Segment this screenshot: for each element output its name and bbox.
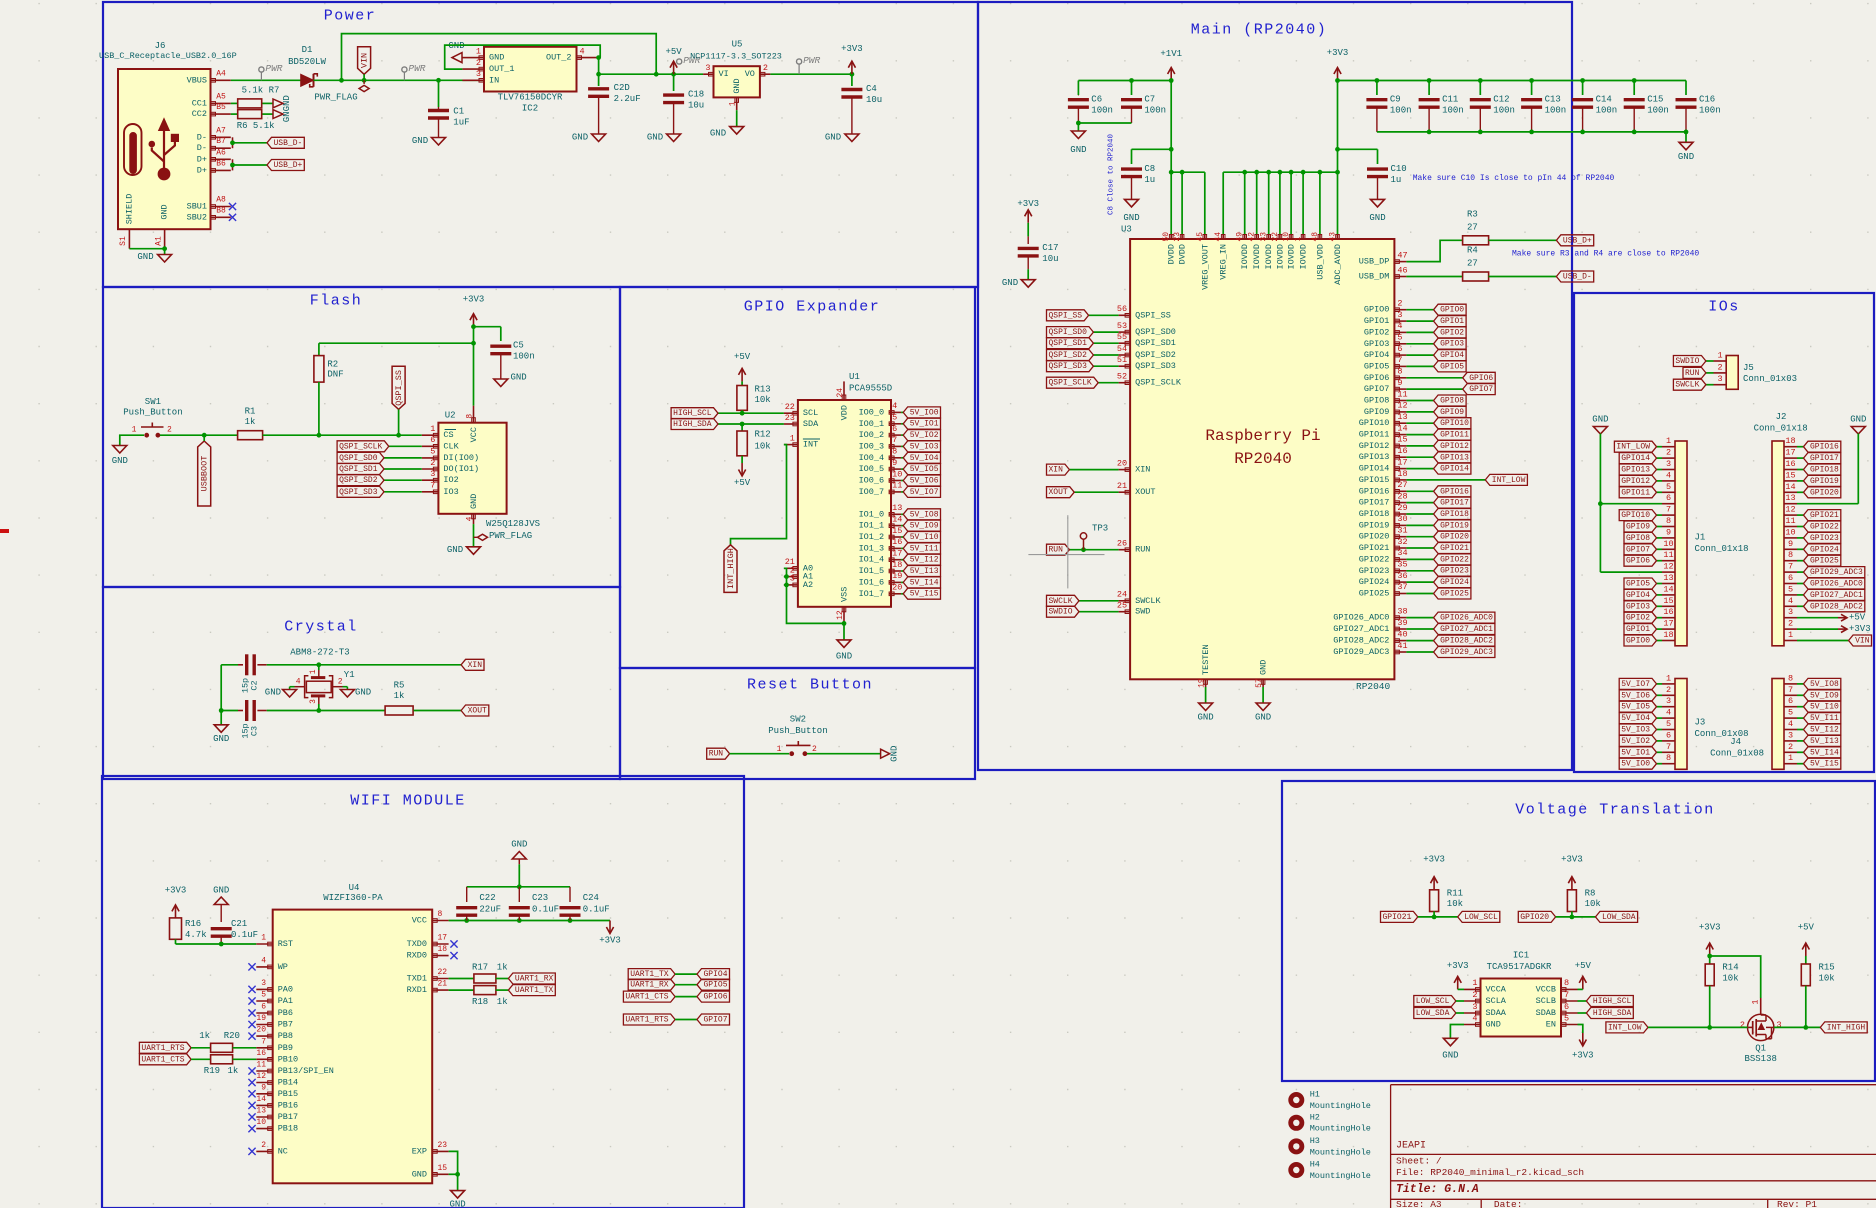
svg-text:S1: S1 <box>119 236 128 246</box>
svg-text:5V_IO0: 5V_IO0 <box>910 408 939 417</box>
svg-text:+3V3: +3V3 <box>1327 48 1349 58</box>
svg-text:2: 2 <box>1666 448 1671 458</box>
svg-text:5V_IO4: 5V_IO4 <box>1621 714 1650 723</box>
svg-text:5V_I14: 5V_I14 <box>910 578 939 587</box>
svg-text:44: 44 <box>1214 232 1223 242</box>
svg-text:R4: R4 <box>1467 246 1478 256</box>
svg-text:GND: GND <box>1850 414 1866 424</box>
svg-text:3: 3 <box>790 574 795 584</box>
svg-text:+5V: +5V <box>734 352 751 362</box>
svg-text:19: 19 <box>256 1014 266 1023</box>
svg-text:UART1_RX: UART1_RX <box>630 981 669 990</box>
svg-text:13: 13 <box>1785 493 1795 503</box>
svg-text:Power: Power <box>324 8 377 25</box>
svg-text:15: 15 <box>1397 435 1407 445</box>
svg-text:GND: GND <box>265 688 281 698</box>
svg-text:C7: C7 <box>1144 95 1155 105</box>
svg-text:SW1: SW1 <box>145 397 161 407</box>
svg-text:5V_I10: 5V_I10 <box>1810 703 1839 712</box>
svg-text:GPIO26_ADC0: GPIO26_ADC0 <box>1333 613 1389 623</box>
svg-text:7: 7 <box>1397 355 1402 365</box>
svg-text:5V_I14: 5V_I14 <box>1810 748 1839 757</box>
svg-text:GPIO10: GPIO10 <box>1440 419 1469 428</box>
svg-text:RUN: RUN <box>1135 545 1150 555</box>
svg-text:3: 3 <box>1777 1020 1782 1030</box>
svg-text:14: 14 <box>1785 482 1795 492</box>
svg-text:UART1_TX: UART1_TX <box>630 970 669 979</box>
svg-text:GND: GND <box>1197 713 1213 723</box>
svg-text:D+: D+ <box>197 165 207 175</box>
svg-text:SDAA: SDAA <box>1486 1008 1507 1018</box>
svg-text:VREG_VOUT: VREG_VOUT <box>1200 244 1210 290</box>
svg-text:GPIO9: GPIO9 <box>1440 408 1464 417</box>
svg-text:Main (RP2040): Main (RP2040) <box>1191 22 1328 39</box>
svg-text:PB14: PB14 <box>278 1078 298 1088</box>
svg-text:Sheet: /: Sheet: / <box>1396 1155 1442 1166</box>
svg-text:2: 2 <box>812 745 817 754</box>
svg-text:1k: 1k <box>497 963 508 973</box>
svg-text:4: 4 <box>1788 719 1793 729</box>
svg-text:17: 17 <box>438 934 448 943</box>
svg-text:1: 1 <box>132 425 137 434</box>
svg-text:GPIO27_ADC1: GPIO27_ADC1 <box>1810 591 1863 600</box>
svg-text:C2D: C2D <box>614 83 630 93</box>
svg-text:12: 12 <box>1663 562 1673 572</box>
svg-text:GPIO4: GPIO4 <box>1364 350 1390 360</box>
svg-text:GPIO20: GPIO20 <box>1810 488 1839 497</box>
svg-text:5: 5 <box>1788 584 1793 594</box>
svg-text:IO1_3: IO1_3 <box>859 543 885 553</box>
svg-text:22uF: 22uF <box>479 905 501 915</box>
svg-text:36: 36 <box>1397 571 1407 581</box>
svg-text:4: 4 <box>466 516 475 521</box>
svg-text:XIN: XIN <box>1135 465 1150 475</box>
svg-text:Conn_01x18: Conn_01x18 <box>1695 544 1749 554</box>
svg-text:GPIO7: GPIO7 <box>1626 545 1650 554</box>
svg-text:GPIO26_ADC0: GPIO26_ADC0 <box>1810 580 1863 589</box>
svg-text:GPIO27_ADC1: GPIO27_ADC1 <box>1333 624 1389 634</box>
svg-text:GND: GND <box>710 129 726 139</box>
svg-text:GPIO7: GPIO7 <box>1364 384 1390 394</box>
svg-text:1: 1 <box>1788 630 1793 640</box>
svg-text:Flash: Flash <box>310 293 363 310</box>
svg-text:10k: 10k <box>1585 899 1601 909</box>
svg-text:17: 17 <box>1663 619 1673 629</box>
svg-text:12: 12 <box>256 1072 266 1081</box>
svg-text:5V_IO9: 5V_IO9 <box>910 522 939 531</box>
svg-text:1k: 1k <box>497 997 508 1007</box>
svg-text:SDAB: SDAB <box>1536 1008 1556 1018</box>
svg-text:+5V: +5V <box>1849 613 1866 623</box>
svg-text:GPIO12: GPIO12 <box>1621 477 1650 486</box>
svg-text:100n: 100n <box>1647 106 1669 116</box>
svg-text:23: 23 <box>1173 232 1182 242</box>
svg-text:Push_Button: Push_Button <box>768 726 827 736</box>
svg-text:A2: A2 <box>803 580 813 590</box>
svg-text:IOVDD: IOVDD <box>1240 244 1250 270</box>
svg-text:B7: B7 <box>216 137 226 146</box>
svg-text:XOUT: XOUT <box>1135 487 1155 497</box>
svg-text:34: 34 <box>1397 548 1407 558</box>
svg-text:QSPI_SD2: QSPI_SD2 <box>339 476 378 485</box>
svg-text:C8 Close to RP2040: C8 Close to RP2040 <box>1108 133 1116 215</box>
svg-text:LOW_SCL: LOW_SCL <box>1416 997 1450 1006</box>
svg-text:USB_D+: USB_D+ <box>1563 236 1592 245</box>
svg-text:GPIO8: GPIO8 <box>1626 534 1650 543</box>
svg-text:R2: R2 <box>327 360 338 370</box>
svg-text:C4: C4 <box>866 84 877 94</box>
svg-text:GPIO19: GPIO19 <box>1359 520 1390 530</box>
svg-text:27: 27 <box>1397 480 1407 490</box>
svg-text:GPIO5: GPIO5 <box>703 981 727 990</box>
svg-text:16: 16 <box>892 537 902 547</box>
svg-text:IO0_1: IO0_1 <box>859 419 885 429</box>
svg-text:12: 12 <box>1397 401 1407 411</box>
svg-text:C11: C11 <box>1442 95 1458 105</box>
svg-text:4: 4 <box>1472 1013 1477 1023</box>
svg-text:45: 45 <box>1196 232 1205 242</box>
svg-text:PB7: PB7 <box>278 1020 293 1030</box>
svg-text:100n: 100n <box>1493 106 1515 116</box>
svg-text:VI: VI <box>719 69 729 79</box>
svg-text:Rev: P1: Rev: P1 <box>1777 1199 1817 1208</box>
svg-text:RST: RST <box>278 939 293 949</box>
svg-text:IO0_2: IO0_2 <box>859 430 885 440</box>
svg-text:GPIO16: GPIO16 <box>1440 487 1469 496</box>
svg-text:24: 24 <box>836 388 845 398</box>
svg-text:NC: NC <box>278 1146 288 1156</box>
svg-text:GPIO23: GPIO23 <box>1810 534 1839 543</box>
svg-text:IO1_7: IO1_7 <box>859 589 885 599</box>
svg-text:37: 37 <box>1397 582 1407 592</box>
svg-text:TXD0: TXD0 <box>407 939 427 949</box>
svg-text:GPIO3: GPIO3 <box>1364 339 1390 349</box>
svg-text:RXD1: RXD1 <box>407 985 427 995</box>
svg-text:6: 6 <box>430 435 435 445</box>
svg-text:GPIO4: GPIO4 <box>1440 351 1464 360</box>
svg-text:GPIO2: GPIO2 <box>1364 327 1390 337</box>
svg-text:UART1_RTS: UART1_RTS <box>625 1016 668 1025</box>
svg-text:SWDIO: SWDIO <box>1675 357 1699 366</box>
svg-text:GNGND: GNGND <box>282 95 292 122</box>
svg-text:QSPI_SCLK: QSPI_SCLK <box>339 442 382 451</box>
svg-text:GND: GND <box>449 1200 465 1208</box>
svg-text:5V_IO1: 5V_IO1 <box>910 420 939 429</box>
svg-text:8: 8 <box>1397 367 1402 377</box>
svg-text:+3V3: +3V3 <box>1447 961 1469 971</box>
svg-text:GPIO0: GPIO0 <box>1440 306 1464 315</box>
svg-text:1k: 1k <box>394 691 405 701</box>
svg-text:10k: 10k <box>1447 899 1463 909</box>
svg-text:10: 10 <box>1663 539 1673 549</box>
svg-text:8: 8 <box>1788 673 1793 683</box>
svg-text:38: 38 <box>1397 606 1407 616</box>
svg-text:RP2040: RP2040 <box>1234 450 1292 468</box>
svg-text:9: 9 <box>1397 378 1402 388</box>
svg-text:UART1_CTS: UART1_CTS <box>141 1055 184 1064</box>
svg-text:8: 8 <box>892 447 897 457</box>
svg-text:PCA9555D: PCA9555D <box>849 383 892 393</box>
svg-text:19: 19 <box>892 571 902 581</box>
svg-text:GPIO25: GPIO25 <box>1440 590 1469 599</box>
svg-text:IO1_0: IO1_0 <box>859 509 885 519</box>
svg-text:J3: J3 <box>1695 717 1706 727</box>
svg-text:+3V3: +3V3 <box>1423 855 1445 865</box>
svg-text:C10: C10 <box>1391 164 1407 174</box>
svg-text:GPIO29_ADC3: GPIO29_ADC3 <box>1810 568 1863 577</box>
svg-text:USB_D+: USB_D+ <box>273 161 302 170</box>
svg-text:4: 4 <box>580 46 585 56</box>
svg-text:+3V3: +3V3 <box>165 886 187 896</box>
svg-text:A4: A4 <box>216 69 226 78</box>
svg-text:C1: C1 <box>453 107 464 117</box>
svg-text:MountingHole: MountingHole <box>1310 1101 1371 1111</box>
svg-text:BD520LW: BD520LW <box>288 57 326 67</box>
svg-text:GPIO7: GPIO7 <box>703 1016 727 1025</box>
svg-text:14: 14 <box>256 1095 266 1104</box>
svg-text:GPIO27_ADC1: GPIO27_ADC1 <box>1440 625 1493 634</box>
svg-text:PB6: PB6 <box>278 1008 293 1018</box>
svg-text:GPIO20: GPIO20 <box>1440 533 1469 542</box>
svg-text:5.1k R7: 5.1k R7 <box>242 86 280 96</box>
svg-text:24: 24 <box>1117 590 1127 600</box>
svg-text:INT_LOW: INT_LOW <box>1492 476 1526 485</box>
svg-text:13: 13 <box>1663 573 1673 583</box>
svg-text:GPIO0: GPIO0 <box>1626 637 1650 646</box>
svg-text:48: 48 <box>1311 232 1320 242</box>
svg-text:2: 2 <box>167 425 172 434</box>
svg-text:10k: 10k <box>1819 974 1835 984</box>
svg-text:49: 49 <box>1236 232 1245 242</box>
svg-text:PA1: PA1 <box>278 996 293 1006</box>
svg-text:+3V3: +3V3 <box>1017 199 1039 209</box>
svg-text:1: 1 <box>476 46 481 56</box>
svg-text:GPIO1: GPIO1 <box>1626 625 1650 634</box>
svg-text:GPIO13: GPIO13 <box>1359 452 1390 462</box>
svg-text:GPIO6: GPIO6 <box>1364 373 1390 383</box>
svg-text:11: 11 <box>892 481 902 491</box>
svg-text:C15: C15 <box>1647 95 1663 105</box>
svg-text:IOVDD: IOVDD <box>1299 244 1309 270</box>
svg-text:6: 6 <box>1666 730 1671 740</box>
svg-text:GPIO14: GPIO14 <box>1440 465 1469 474</box>
svg-text:8: 8 <box>1564 978 1569 988</box>
svg-text:GPIO17: GPIO17 <box>1359 498 1390 508</box>
svg-text:GPIO4: GPIO4 <box>703 970 727 979</box>
svg-text:VIN: VIN <box>1855 637 1870 646</box>
svg-text:1: 1 <box>777 745 782 754</box>
svg-text:20: 20 <box>256 1026 266 1035</box>
svg-text:H3: H3 <box>1310 1136 1320 1146</box>
svg-text:GND: GND <box>1442 1051 1458 1061</box>
svg-text:4.7k: 4.7k <box>185 930 207 940</box>
svg-text:5V_IO6: 5V_IO6 <box>1621 691 1650 700</box>
svg-text:GPIO21: GPIO21 <box>1382 913 1411 922</box>
svg-text:RUN: RUN <box>709 750 724 759</box>
svg-text:GPIO7: GPIO7 <box>1469 385 1493 394</box>
svg-text:IO0_6: IO0_6 <box>859 476 885 486</box>
svg-text:GPIO6: GPIO6 <box>703 993 727 1002</box>
svg-text:GPIO13: GPIO13 <box>1440 453 1469 462</box>
svg-text:GPIO5: GPIO5 <box>1440 362 1464 371</box>
svg-text:C21: C21 <box>231 919 247 929</box>
svg-text:IO1_4: IO1_4 <box>859 555 885 565</box>
svg-text:0.1uF: 0.1uF <box>583 905 610 915</box>
svg-text:15: 15 <box>1785 470 1795 480</box>
svg-text:File: RP2040_minimal_r2.kicad_: File: RP2040_minimal_r2.kicad_sch <box>1396 1167 1584 1178</box>
svg-text:SDA: SDA <box>803 419 819 429</box>
svg-text:GND: GND <box>489 53 504 63</box>
svg-text:C13: C13 <box>1545 95 1561 105</box>
svg-text:MountingHole: MountingHole <box>1310 1124 1371 1134</box>
svg-text:19: 19 <box>1198 678 1207 688</box>
svg-text:5V_I12: 5V_I12 <box>910 556 939 565</box>
svg-text:5V_IO4: 5V_IO4 <box>910 454 939 463</box>
svg-text:6: 6 <box>1788 573 1793 583</box>
svg-text:3: 3 <box>1397 310 1402 320</box>
svg-text:5V_I11: 5V_I11 <box>910 544 939 553</box>
svg-text:C22: C22 <box>479 893 495 903</box>
svg-text:PWR_FLAG: PWR_FLAG <box>489 531 532 541</box>
svg-text:HIGH_SCL: HIGH_SCL <box>673 409 712 418</box>
svg-text:GPIO1: GPIO1 <box>1364 316 1390 326</box>
svg-text:1u: 1u <box>1144 175 1155 185</box>
svg-text:GPIO17: GPIO17 <box>1440 499 1469 508</box>
svg-text:5: 5 <box>892 413 897 423</box>
svg-text:9: 9 <box>892 458 897 468</box>
svg-text:5V_I12: 5V_I12 <box>1810 726 1839 735</box>
svg-text:PB10: PB10 <box>278 1054 298 1064</box>
svg-text:11: 11 <box>1397 389 1407 399</box>
svg-text:GPIO14: GPIO14 <box>1359 464 1390 474</box>
svg-text:28: 28 <box>1397 491 1407 501</box>
svg-text:10k: 10k <box>1722 974 1738 984</box>
svg-text:GPIO18: GPIO18 <box>1440 510 1469 519</box>
svg-text:IO0_7: IO0_7 <box>859 487 885 497</box>
svg-text:2: 2 <box>763 63 768 73</box>
svg-text:53: 53 <box>1117 321 1127 331</box>
svg-text:17: 17 <box>892 549 902 559</box>
svg-text:GPIO13: GPIO13 <box>1621 466 1650 475</box>
svg-text:IO1_6: IO1_6 <box>859 577 885 587</box>
svg-text:C5: C5 <box>513 341 524 351</box>
svg-text:QSPI_SS: QSPI_SS <box>1048 311 1082 320</box>
svg-text:GPIO2: GPIO2 <box>1626 614 1650 623</box>
svg-text:A6: A6 <box>216 148 226 157</box>
svg-text:GPIO25: GPIO25 <box>1810 557 1839 566</box>
svg-text:IOVDD: IOVDD <box>1252 244 1262 270</box>
svg-text:100n: 100n <box>1390 106 1412 116</box>
svg-text:QSPI_SD0: QSPI_SD0 <box>1135 327 1176 337</box>
svg-text:5V_I10: 5V_I10 <box>910 533 939 542</box>
svg-text:USB_VDD: USB_VDD <box>1315 244 1325 280</box>
svg-text:8: 8 <box>438 910 443 919</box>
svg-text:7: 7 <box>892 435 897 445</box>
svg-text:22: 22 <box>1271 232 1280 242</box>
svg-text:3: 3 <box>309 699 318 704</box>
svg-text:UART1_TX: UART1_TX <box>515 986 554 995</box>
svg-text:GND: GND <box>890 746 900 762</box>
svg-text:5V_IO8: 5V_IO8 <box>910 510 939 519</box>
svg-text:5: 5 <box>430 447 435 457</box>
svg-text:USBBOOT: USBBOOT <box>200 456 210 492</box>
svg-text:R3: R3 <box>1467 210 1478 220</box>
svg-text:GND: GND <box>213 886 229 896</box>
svg-text:PB17: PB17 <box>278 1112 298 1122</box>
svg-text:GPIO3: GPIO3 <box>1626 602 1650 611</box>
svg-text:R15: R15 <box>1819 963 1835 973</box>
svg-text:R1: R1 <box>245 407 256 417</box>
svg-text:GPIO4: GPIO4 <box>1626 591 1650 600</box>
svg-text:GPIO11: GPIO11 <box>1359 430 1390 440</box>
svg-text:PB15: PB15 <box>278 1089 298 1099</box>
svg-text:Size: A3: Size: A3 <box>1396 1199 1442 1208</box>
svg-text:LOW_SDA: LOW_SDA <box>1416 1009 1450 1018</box>
svg-text:4: 4 <box>892 401 897 411</box>
svg-text:6: 6 <box>261 1003 266 1012</box>
svg-text:GPIO21: GPIO21 <box>1359 543 1390 553</box>
svg-text:50: 50 <box>1162 232 1171 242</box>
svg-text:1u: 1u <box>1391 175 1402 185</box>
svg-text:B6: B6 <box>216 159 226 168</box>
svg-text:10: 10 <box>1785 527 1795 537</box>
svg-text:GPIO8: GPIO8 <box>1440 397 1464 406</box>
svg-text:SWDIO: SWDIO <box>1048 608 1072 617</box>
svg-text:25: 25 <box>1117 601 1127 611</box>
svg-text:QSPI_SD1: QSPI_SD1 <box>339 465 378 474</box>
svg-text:2: 2 <box>430 458 435 468</box>
svg-text:4: 4 <box>1666 708 1671 718</box>
svg-text:23: 23 <box>785 413 795 423</box>
svg-text:GND: GND <box>1678 152 1694 162</box>
svg-text:1: 1 <box>261 934 266 943</box>
svg-text:2: 2 <box>1740 1020 1745 1030</box>
svg-text:SW2: SW2 <box>790 714 806 724</box>
svg-text:6: 6 <box>1666 493 1671 503</box>
svg-text:GPIO6: GPIO6 <box>1626 557 1650 566</box>
svg-text:U1: U1 <box>849 372 860 382</box>
svg-text:12: 12 <box>836 610 845 620</box>
svg-text:Conn_01x08: Conn_01x08 <box>1710 749 1764 759</box>
svg-text:QSPI_SD1: QSPI_SD1 <box>1048 339 1087 348</box>
svg-text:QSPI_SD1: QSPI_SD1 <box>1135 338 1176 348</box>
svg-text:C3: C3 <box>250 726 260 736</box>
svg-text:GND: GND <box>825 132 841 142</box>
svg-text:GPIO22: GPIO22 <box>1359 554 1390 564</box>
svg-text:GPIO11: GPIO11 <box>1440 431 1469 440</box>
svg-text:2: 2 <box>261 1141 266 1150</box>
svg-text:INT_HIGH: INT_HIGH <box>1827 1023 1866 1032</box>
svg-text:8: 8 <box>466 414 475 419</box>
svg-text:R14: R14 <box>1722 963 1738 973</box>
svg-text:Voltage Translation: Voltage Translation <box>1515 802 1715 819</box>
svg-text:CC1: CC1 <box>192 98 207 108</box>
svg-text:GND: GND <box>160 204 170 219</box>
svg-text:100n: 100n <box>513 352 535 362</box>
svg-text:GND: GND <box>1123 213 1139 223</box>
svg-text:2: 2 <box>1788 619 1793 629</box>
svg-text:GND: GND <box>137 252 153 262</box>
svg-text:C24: C24 <box>583 893 599 903</box>
svg-text:11: 11 <box>1663 550 1673 560</box>
svg-text:GPIO15: GPIO15 <box>1359 475 1390 485</box>
svg-text:VCCA: VCCA <box>1486 984 1507 994</box>
svg-text:4: 4 <box>1397 321 1402 331</box>
svg-text:GPIO11: GPIO11 <box>1621 488 1650 497</box>
svg-text:USB_DP: USB_DP <box>1359 257 1390 267</box>
svg-text:Date:: Date: <box>1494 1199 1523 1208</box>
svg-text:5: 5 <box>1666 719 1671 729</box>
